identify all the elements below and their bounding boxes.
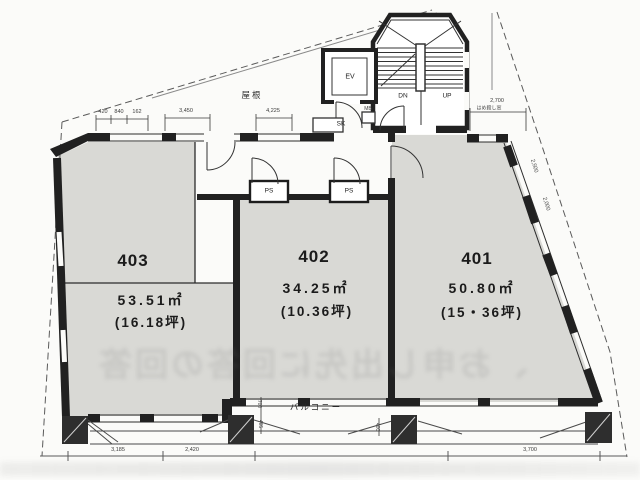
dim-bottom-3185: 3,185 <box>111 447 125 453</box>
floor-plan-page: 、お申し出先に回答の回答 <box>0 0 640 480</box>
roof-area-label: 屋根 <box>241 89 262 101</box>
room-403-area: 53.51㎡ <box>117 290 184 310</box>
dim-small-700: 700 <box>256 400 262 408</box>
pipe-space-2-label: PS <box>345 188 354 195</box>
room-401-area: 50.80㎡ <box>448 278 515 298</box>
meter-box <box>362 112 375 123</box>
dim-top-420: 420 <box>98 109 107 115</box>
stairs-up-label: UP <box>442 93 451 100</box>
pipe-space-1-label: PS <box>265 188 274 195</box>
dim-top-4225: 4,225 <box>266 108 280 114</box>
dim-top-840: 840 <box>114 109 123 115</box>
room-doors <box>207 142 423 178</box>
room-401-tsubo: (15・36坪) <box>441 301 523 321</box>
room-403-number: 403 <box>117 251 148 271</box>
door-opening-403 <box>204 131 234 143</box>
sink-label: SK <box>337 121 346 128</box>
scan-showthrough-smudge <box>0 462 640 476</box>
room-402-area: 34.25㎡ <box>282 278 349 298</box>
window-note-label: はめ殺し窓 <box>476 105 501 112</box>
dim-small-400: 400 <box>374 423 380 431</box>
watermark-text: 、お申し出先に回答の回答 <box>58 338 528 386</box>
dim-right-2700: 2,700 <box>490 98 504 104</box>
dim-small-405: 405 <box>257 420 263 428</box>
stair-block <box>370 15 469 134</box>
dim-bottom-3700: 3,700 <box>523 447 537 453</box>
room-402-number: 402 <box>298 247 329 267</box>
balcony-label: バルコニー <box>290 401 342 413</box>
dim-top-3450: 3,450 <box>179 108 193 114</box>
meter-box-label: MB <box>364 106 372 112</box>
room-401-number: 401 <box>461 249 492 269</box>
dim-top-162: 162 <box>132 109 141 115</box>
room-403-tsubo: (16.18坪) <box>115 311 187 331</box>
balcony-railing <box>88 420 598 444</box>
dim-bottom-2420: 2,420 <box>185 447 199 453</box>
elevator-label: EV <box>345 74 354 81</box>
room-402-tsubo: (10.36坪) <box>281 300 353 320</box>
stairs-down-label: DN <box>398 93 407 100</box>
